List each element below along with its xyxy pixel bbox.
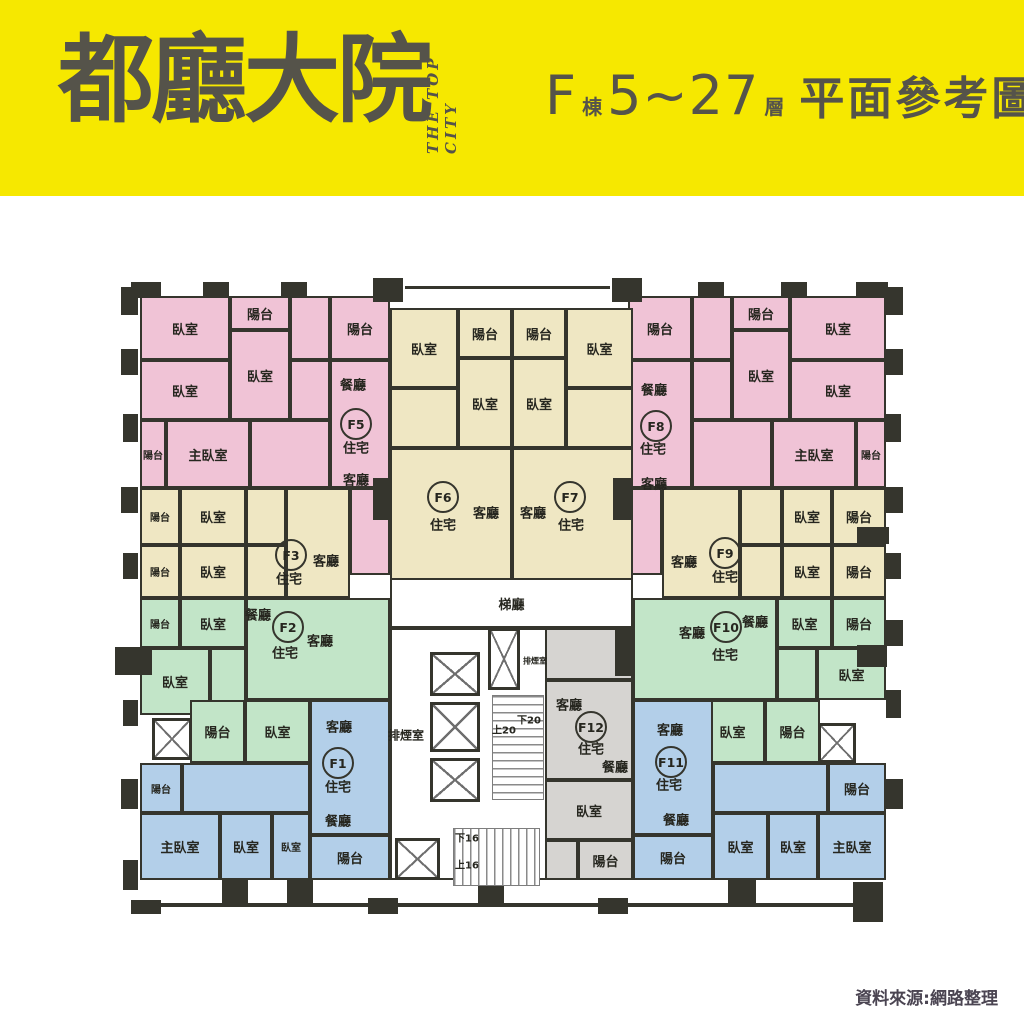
wall-column	[121, 487, 138, 513]
elevator-icon	[430, 702, 480, 752]
free-label: 住宅	[343, 438, 369, 457]
room-label: 陽台	[337, 848, 363, 867]
room-label: 陽台	[143, 447, 163, 462]
wall-column	[115, 647, 152, 675]
wall-column	[121, 349, 138, 375]
unit-circle: F9	[709, 537, 741, 569]
room: 臥室	[458, 358, 512, 448]
room	[566, 388, 633, 448]
wall-column	[886, 414, 901, 442]
room-label: 陽台	[472, 324, 498, 343]
free-label: 客廳	[473, 503, 499, 522]
room: 臥室	[713, 813, 768, 880]
unit-circle: F8	[640, 410, 672, 442]
room-label: 陽台	[846, 507, 872, 526]
free-label: 排煙室	[523, 656, 547, 667]
wall-column	[853, 882, 883, 922]
room-label: 臥室	[200, 614, 226, 633]
room-label: 陽台	[347, 319, 373, 338]
wall-column	[856, 282, 888, 298]
room: 臥室	[140, 296, 230, 360]
unit-circle: F6	[427, 481, 459, 513]
elevator-icon	[430, 652, 480, 696]
room-label: 陽台	[846, 614, 872, 633]
unit-circle: F2	[272, 611, 304, 643]
free-label: 住宅	[640, 439, 666, 458]
free-label: 住宅	[325, 777, 351, 796]
room	[628, 488, 662, 575]
elevator-icon	[430, 758, 480, 802]
room-label: 臥室	[472, 394, 498, 413]
wall-column	[857, 645, 887, 667]
room-label: 陽台	[526, 324, 552, 343]
room: 臥室	[566, 308, 633, 388]
room-label: 臥室	[727, 837, 753, 856]
room: 臥室	[790, 296, 886, 360]
room	[692, 296, 732, 360]
wall-column	[140, 903, 855, 907]
room: 臥室	[180, 545, 246, 598]
room: 臥室	[180, 598, 246, 648]
room: 陽台	[310, 835, 390, 880]
wall-column	[886, 287, 903, 315]
wall-column	[781, 282, 807, 298]
free-label: 餐廳	[742, 612, 768, 631]
room: 陽台	[628, 296, 692, 360]
room: 臥室	[245, 700, 310, 763]
room-label: 臥室	[794, 507, 820, 526]
room: 臥室	[790, 360, 886, 420]
wall-column	[857, 527, 889, 544]
room-label: 臥室	[576, 801, 602, 820]
room-label: 臥室	[247, 366, 273, 385]
room	[740, 488, 782, 545]
free-label: 餐廳	[245, 605, 271, 624]
room	[290, 360, 330, 420]
room-label: 臥室	[526, 394, 552, 413]
room: 陽台	[512, 308, 566, 358]
room: 主臥室	[772, 420, 856, 488]
free-label: 上20	[492, 722, 516, 737]
room	[740, 545, 782, 598]
free-label: 客廳	[520, 503, 546, 522]
wall-column	[373, 478, 391, 520]
wall-column	[886, 620, 903, 646]
room: 主臥室	[818, 813, 886, 880]
free-label: 下16	[455, 830, 479, 845]
source-note: 資料來源:網路整理	[855, 984, 998, 1009]
free-label: 住宅	[712, 567, 738, 586]
room	[692, 360, 732, 420]
wall-column	[886, 487, 903, 513]
room: 臥室	[512, 358, 566, 448]
room-label: 陽台	[779, 722, 805, 741]
free-label: 下20	[517, 712, 541, 727]
room: 陽台	[140, 420, 166, 488]
floor-plan: 梯廳臥室陽台臥室陽台臥室陽台主臥室陽台陽台臥室臥室臥室主臥室陽台臥室陽台臥室陽台…	[0, 0, 1024, 1024]
room: 臥室	[768, 813, 818, 880]
room-label: 臥室	[791, 614, 817, 633]
room: 陽台	[140, 598, 180, 648]
wall-column	[405, 286, 610, 289]
wall-column	[281, 282, 307, 298]
room-label: 陽台	[861, 447, 881, 462]
unit-circle: F7	[554, 481, 586, 513]
page: 都廳大院 THE TOP CITY F 棟 5~27 層 平面參考圖 梯廳臥室陽…	[0, 0, 1024, 1024]
room: 陽台	[828, 763, 886, 813]
wall-column	[123, 860, 138, 890]
room: 陽台	[856, 420, 886, 488]
room-label: 臥室	[233, 837, 259, 856]
room-label: 臥室	[825, 319, 851, 338]
room: 主臥室	[140, 813, 220, 880]
room-label: 陽台	[151, 781, 171, 796]
room-label: 臥室	[719, 722, 745, 741]
room-label: 臥室	[200, 507, 226, 526]
room: 臥室	[777, 598, 832, 648]
free-label: 住宅	[656, 775, 682, 794]
room: 陽台	[732, 296, 790, 330]
room-label: 陽台	[592, 851, 618, 870]
room: 陽台	[140, 488, 180, 545]
shaft-icon	[152, 718, 192, 760]
wall-column	[121, 287, 138, 315]
room: 臥室	[390, 308, 458, 388]
room-label: 主臥室	[794, 445, 833, 464]
free-label: 客廳	[326, 717, 352, 736]
room-label: 主臥室	[832, 837, 871, 856]
free-label: 客廳	[641, 474, 667, 493]
room-label: 臥室	[264, 722, 290, 741]
room: 陽台	[140, 763, 182, 813]
wall-column	[728, 878, 756, 906]
unit-circle: F3	[275, 539, 307, 571]
free-label: 住宅	[712, 645, 738, 664]
unit-circle: F10	[710, 611, 742, 643]
room-label: 陽台	[150, 616, 170, 631]
wall-column	[613, 478, 631, 520]
room	[777, 648, 817, 700]
room: 臥室	[782, 545, 832, 598]
wall-column	[615, 628, 633, 676]
room-label: 臥室	[281, 839, 301, 854]
free-label: 餐廳	[340, 375, 366, 394]
shaft-icon	[818, 723, 856, 763]
room: 陽台	[230, 296, 290, 330]
unit-circle: F5	[340, 408, 372, 440]
room-label: 主臥室	[160, 837, 199, 856]
free-label: 客廳	[679, 623, 705, 642]
room-label: 陽台	[647, 319, 673, 338]
room	[246, 488, 286, 545]
free-label: 餐廳	[641, 380, 667, 399]
free-label: 客廳	[307, 631, 333, 650]
smoke-shaft-icon	[488, 628, 520, 690]
shaft-icon	[395, 838, 440, 880]
room-label: 臥室	[794, 562, 820, 581]
room-label: 陽台	[204, 722, 230, 741]
room-label: 梯廳	[498, 594, 524, 613]
room-label: 臥室	[825, 381, 851, 400]
free-label: 客廳	[313, 551, 339, 570]
room: 陽台	[140, 545, 180, 598]
room	[250, 420, 330, 488]
room-label: 陽台	[247, 304, 273, 323]
free-label: 上16	[455, 857, 479, 872]
room-label: 陽台	[660, 848, 686, 867]
wall-column	[886, 553, 901, 579]
room-label: 主臥室	[188, 445, 227, 464]
unit-circle: F1	[322, 747, 354, 779]
room: 陽台	[765, 700, 820, 763]
room: 陽台	[330, 296, 390, 360]
free-label: 餐廳	[602, 757, 628, 776]
free-label: 餐廳	[663, 810, 689, 829]
room: 臥室	[220, 813, 272, 880]
room-label: 陽台	[150, 564, 170, 579]
room-label: 陽台	[846, 562, 872, 581]
room-label: 臥室	[586, 339, 612, 358]
unit-circle: F11	[655, 746, 687, 778]
room: 臥室	[230, 330, 290, 420]
wall-column	[698, 282, 724, 298]
room: 陽台	[458, 308, 512, 358]
room	[713, 763, 828, 813]
wall-column	[203, 282, 229, 298]
room	[390, 388, 458, 448]
room-label: 陽台	[844, 779, 870, 798]
room-label: 臥室	[172, 319, 198, 338]
wall-column	[123, 414, 138, 442]
room-label: 臥室	[838, 665, 864, 684]
free-label: 住宅	[276, 569, 302, 588]
room-label: 臥室	[200, 562, 226, 581]
room	[290, 296, 330, 360]
room: 梯廳	[390, 578, 633, 628]
free-label: 客廳	[343, 470, 369, 489]
room: 臥室	[545, 780, 633, 840]
room-label: 陽台	[748, 304, 774, 323]
room-label: 臥室	[172, 381, 198, 400]
free-label: 排煙室	[388, 727, 424, 744]
room: 陽台	[832, 545, 886, 598]
wall-column	[886, 349, 903, 375]
room: 臥室	[140, 360, 230, 420]
wall-column	[886, 779, 903, 809]
room: 陽台	[190, 700, 245, 763]
room-label: 臥室	[162, 672, 188, 691]
room	[692, 420, 772, 488]
room: 臥室	[732, 330, 790, 420]
room: 陽台	[633, 835, 713, 880]
wall-column	[886, 690, 901, 718]
free-label: 住宅	[272, 643, 298, 662]
free-label: 客廳	[657, 720, 683, 739]
wall-column	[123, 553, 138, 579]
room	[182, 763, 310, 813]
free-label: 餐廳	[325, 811, 351, 830]
room: 主臥室	[166, 420, 250, 488]
room-label: 臥室	[748, 366, 774, 385]
room: 臥室	[180, 488, 246, 545]
wall-column	[373, 278, 403, 302]
free-label: 住宅	[578, 739, 604, 758]
free-label: 住宅	[558, 515, 584, 534]
room	[545, 840, 578, 880]
room-label: 臥室	[780, 837, 806, 856]
room: 陽台	[578, 840, 633, 880]
free-label: 客廳	[556, 695, 582, 714]
wall-column	[612, 278, 642, 302]
free-label: 住宅	[430, 515, 456, 534]
room-label: 陽台	[150, 509, 170, 524]
wall-column	[121, 779, 138, 809]
wall-column	[123, 700, 138, 726]
room-label: 臥室	[411, 339, 437, 358]
wall-column	[222, 878, 248, 906]
free-label: 客廳	[671, 552, 697, 571]
room: 臥室	[782, 488, 832, 545]
room: 陽台	[832, 598, 886, 648]
wall-column	[287, 878, 313, 906]
room: 臥室	[272, 813, 310, 880]
